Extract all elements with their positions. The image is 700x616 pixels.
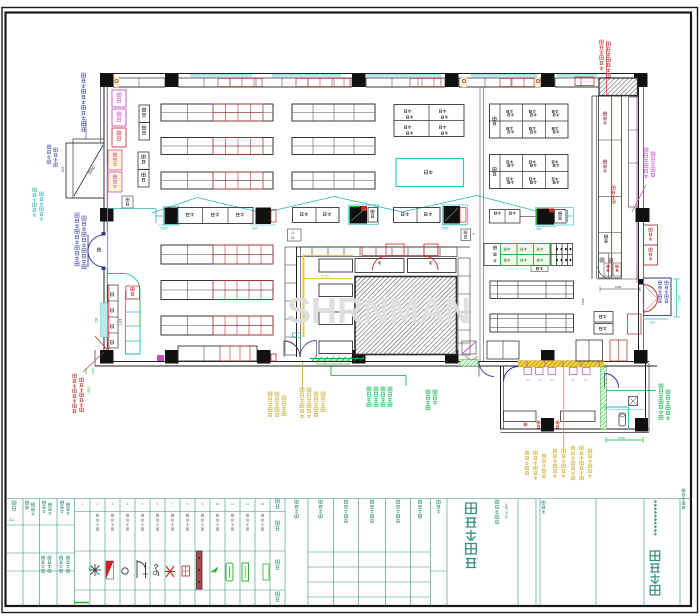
svg-text:200: 200 (61, 166, 65, 172)
svg-text:1500: 1500 (160, 227, 168, 231)
svg-text:-3: -3 (291, 231, 294, 235)
svg-text:10: 10 (216, 502, 220, 506)
svg-text:JOB TITLE: JOB TITLE (504, 503, 508, 519)
svg-text:600: 600 (252, 227, 258, 231)
svg-text:SHRNMAN: SHRNMAN (287, 290, 471, 331)
svg-text:12: 12 (246, 502, 250, 506)
svg-text:1500: 1500 (678, 295, 682, 302)
svg-text:1500: 1500 (581, 298, 585, 305)
svg-text:13: 13 (261, 502, 265, 506)
svg-text:200: 200 (95, 317, 99, 323)
svg-text:1.03: 1.03 (119, 319, 123, 326)
svg-text:1500: 1500 (441, 227, 449, 231)
svg-text:450: 450 (536, 227, 542, 231)
svg-text:11: 11 (231, 502, 234, 506)
svg-text:A3: A3 (9, 517, 15, 522)
svg-text:1500: 1500 (615, 285, 622, 289)
svg-text:-5: -5 (472, 232, 475, 236)
svg-text:2700: 2700 (618, 436, 625, 440)
svg-text:1500: 1500 (87, 386, 91, 394)
svg-text:51: 51 (291, 236, 295, 240)
svg-text:5700: 5700 (321, 275, 329, 279)
svg-text:800: 800 (650, 321, 656, 325)
svg-text:**********: ********** (649, 500, 658, 537)
